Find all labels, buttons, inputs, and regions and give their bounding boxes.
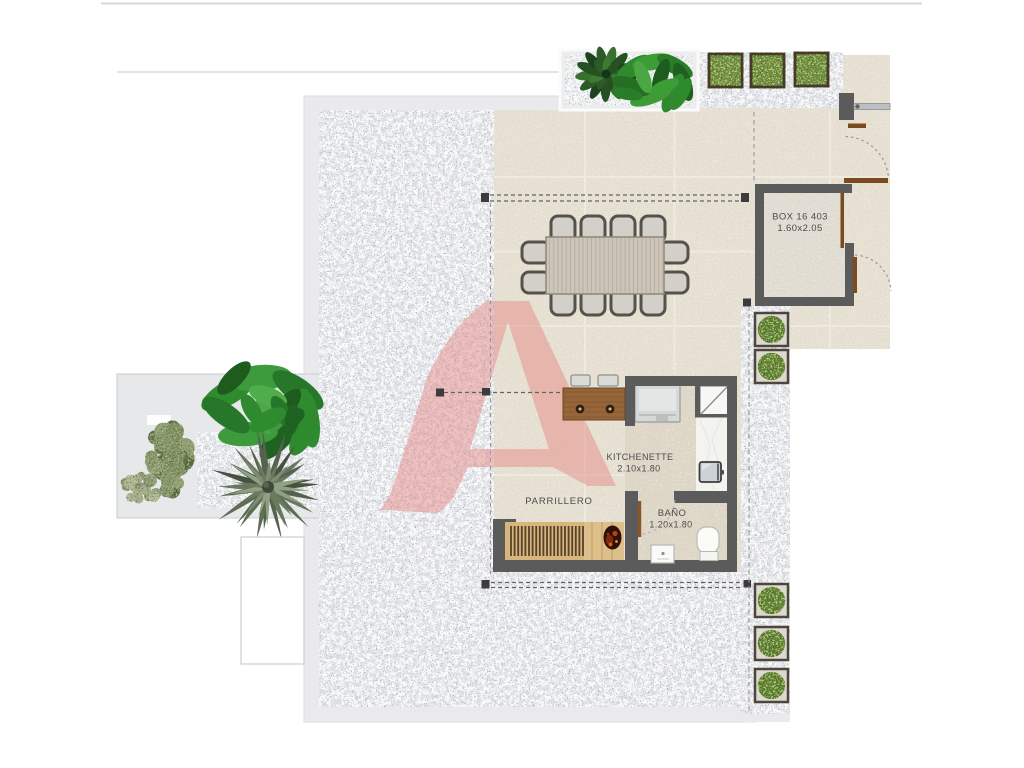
svg-text:1.60x2.05: 1.60x2.05 xyxy=(777,223,822,234)
svg-text:2.10x1.80: 2.10x1.80 xyxy=(617,464,660,474)
svg-text:PARRILLERO: PARRILLERO xyxy=(525,496,592,507)
svg-text:KITCHENETTE: KITCHENETTE xyxy=(607,452,674,462)
svg-text:BOX 16 403: BOX 16 403 xyxy=(772,212,828,223)
svg-text:1.20x1.80: 1.20x1.80 xyxy=(649,520,692,530)
svg-text:BAÑO: BAÑO xyxy=(658,508,687,519)
